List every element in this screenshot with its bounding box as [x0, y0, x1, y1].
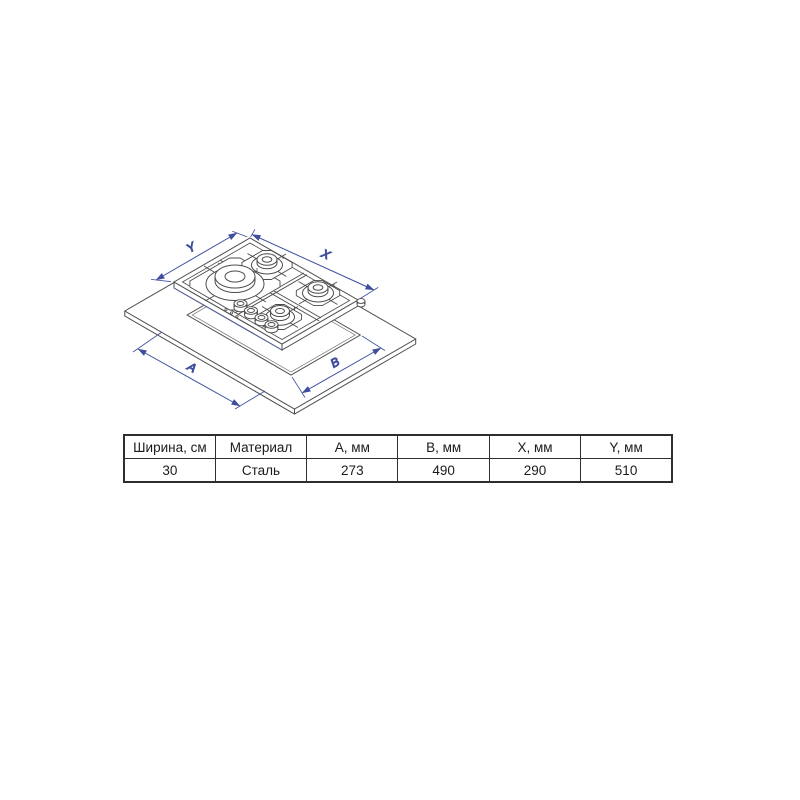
dimension-label-x: X	[318, 246, 333, 263]
knob	[265, 321, 278, 333]
spec-value-row: 30 Сталь 273 490 290 510	[124, 459, 672, 483]
extension-line	[361, 287, 379, 298]
extension-line	[151, 279, 171, 281]
spec-header-width: Ширина, см	[124, 435, 215, 459]
product-sheet: A B	[0, 0, 800, 800]
spec-header-a: A, мм	[307, 435, 398, 459]
spec-value-material: Сталь	[215, 459, 306, 483]
dimension-label-y: Y	[184, 239, 199, 256]
spec-value-y: 510	[581, 459, 672, 483]
dimension-label-a: A	[184, 359, 199, 376]
spec-value-b: 490	[398, 459, 489, 483]
extension-line	[133, 332, 162, 352]
spec-header-y: Y, мм	[581, 435, 672, 459]
spec-value-width: 30	[124, 459, 215, 483]
spec-table: Ширина, см Материал A, мм B, мм X, мм Y,…	[123, 434, 673, 483]
spec-header-b: B, мм	[398, 435, 489, 459]
spec-header-x: X, мм	[489, 435, 580, 459]
extension-line	[235, 391, 265, 409]
spec-header-material: Материал	[215, 435, 306, 459]
hob-isometric-diagram: A B	[0, 0, 800, 800]
spec-header-row: Ширина, см Материал A, мм B, мм X, мм Y,…	[124, 435, 672, 459]
spec-value-x: 290	[489, 459, 580, 483]
spec-value-a: 273	[307, 459, 398, 483]
corner-fitting	[357, 299, 365, 307]
